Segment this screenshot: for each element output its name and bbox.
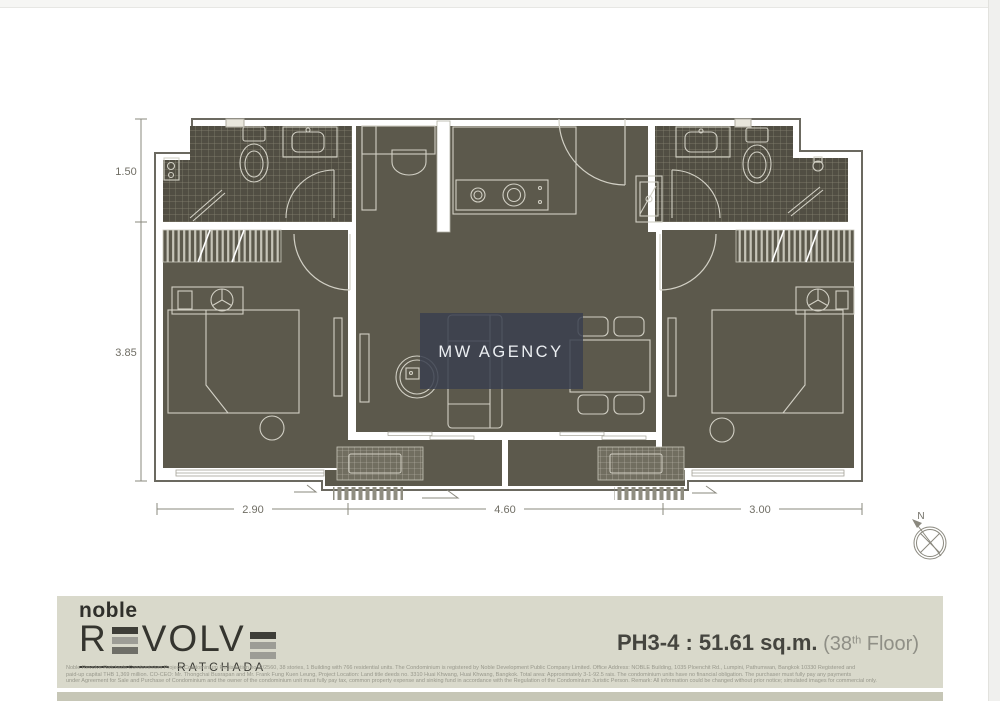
sliding-door [430, 436, 474, 440]
disclaimer-line-3: under Agreement for Sale and Purchase of… [66, 678, 938, 685]
kitchen-divider-wall [437, 121, 450, 232]
compass-n-label: N [917, 511, 924, 522]
unit-floor-close: Floor) [861, 633, 919, 655]
floor-plan-svg: MW AGENCY 1.50 3.85 2.90 4.60 3.00 N [0, 0, 1000, 585]
swing-arrow [692, 486, 716, 493]
logo-wordmark: R VOLV [79, 622, 280, 656]
bedroom-right-floor [662, 230, 854, 468]
ac-unit-left [337, 447, 423, 480]
unit-floor-open: (38 [818, 633, 852, 655]
dim-1-50: 1.50 [115, 166, 136, 178]
watermark-text: MW AGENCY [438, 343, 563, 361]
unit-code-area: PH3-4 : 51.61 sq.m. [617, 630, 818, 655]
louver-left [333, 487, 403, 500]
unit-floor-ordinal: th [852, 635, 861, 647]
logo-letters: VOLV [142, 622, 246, 656]
dim-3-85: 3.85 [115, 347, 136, 359]
logo-letter: R [79, 622, 108, 656]
dim-4-60: 4.60 [494, 504, 515, 516]
dimension-bottom: 2.90 4.60 3.00 [157, 502, 862, 516]
legal-disclaimer: Noble Revolve Ratchada Condominium Proje… [66, 665, 938, 685]
vent [226, 119, 244, 127]
compass-icon: N [912, 511, 946, 559]
bathroom-right-floor [655, 126, 848, 222]
unit-title: PH3-4 : 51.61 sq.m. (38th Floor) [617, 630, 919, 656]
logo-e-bars-icon [250, 630, 276, 659]
disclaimer-line-2: paid-up capital THB 1,369 million. CO-CE… [66, 672, 938, 679]
swing-arrow [294, 485, 316, 492]
floor-plan: MW AGENCY 1.50 3.85 2.90 4.60 3.00 N [0, 0, 1000, 585]
sliding-door [388, 432, 432, 436]
disclaimer-line-1: Noble Revolve Ratchada Condominium Proje… [66, 665, 938, 672]
dim-2-90: 2.90 [242, 504, 263, 516]
footer-bottom-strip [57, 692, 943, 701]
footer-band: noble R VOLV RATCHADA PH3-4 : 51.61 sq.m… [57, 596, 943, 688]
vent [735, 119, 751, 127]
logo-e-bars-icon [112, 625, 138, 654]
bedroom-left-floor [163, 230, 348, 468]
louver-right [614, 487, 684, 500]
dimension-left: 1.50 3.85 [115, 119, 147, 481]
swing-arrow [422, 490, 458, 498]
dim-3-00: 3.00 [749, 504, 770, 516]
project-logo: noble R VOLV RATCHADA [79, 600, 280, 674]
sliding-door [602, 436, 646, 440]
sliding-door [560, 432, 604, 436]
ac-unit-right [598, 447, 684, 480]
watermark: MW AGENCY [420, 313, 583, 389]
floor-plan-page: MW AGENCY 1.50 3.85 2.90 4.60 3.00 N [0, 0, 1000, 701]
